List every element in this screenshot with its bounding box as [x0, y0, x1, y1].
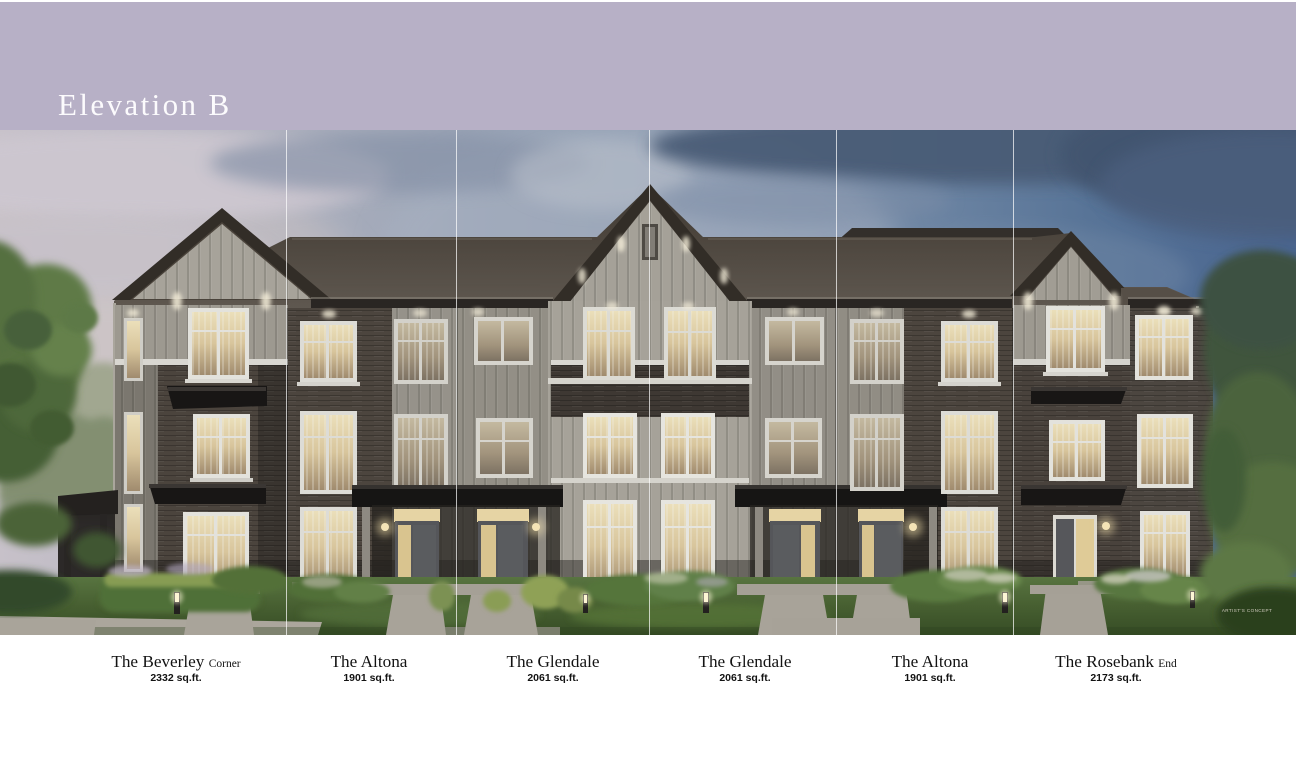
svg-text:The Altona: The Altona [331, 652, 408, 671]
svg-text:The Glendale: The Glendale [698, 652, 791, 671]
svg-text:The Altona: The Altona [892, 652, 969, 671]
svg-text:2332 sq.ft.: 2332 sq.ft. [150, 672, 201, 684]
svg-text:Elevation B: Elevation B [58, 87, 232, 122]
svg-text:1901 sq.ft.: 1901 sq.ft. [343, 672, 394, 684]
svg-text:ARTIST'S CONCEPT: ARTIST'S CONCEPT [1222, 608, 1272, 613]
svg-text:2061 sq.ft.: 2061 sq.ft. [527, 672, 578, 684]
svg-text:2061 sq.ft.: 2061 sq.ft. [719, 672, 770, 684]
svg-text:The Glendale: The Glendale [506, 652, 599, 671]
svg-text:2173 sq.ft.: 2173 sq.ft. [1090, 672, 1141, 684]
svg-text:1901 sq.ft.: 1901 sq.ft. [904, 672, 955, 684]
